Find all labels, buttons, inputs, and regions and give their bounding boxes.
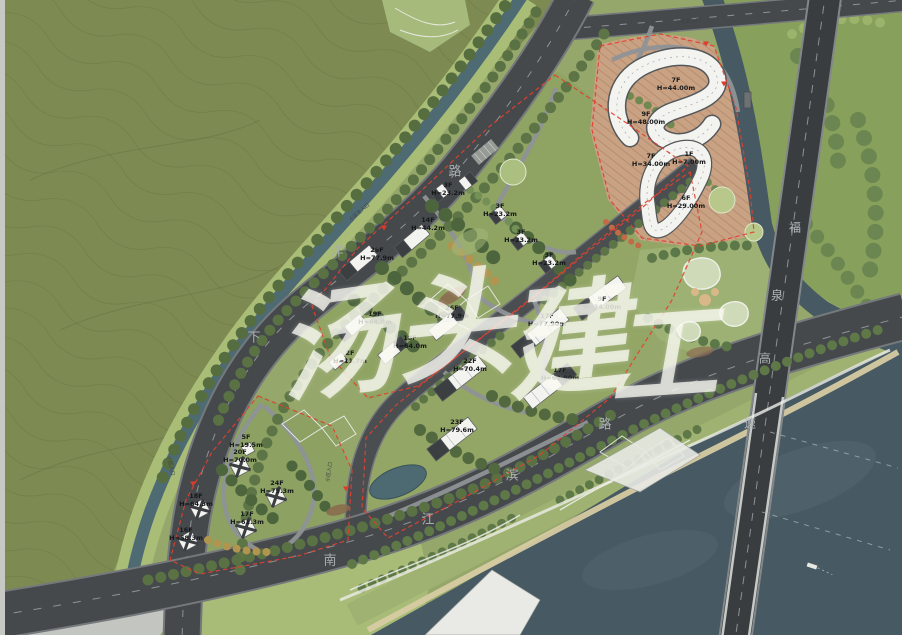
site-plan-canvas: 26FH=77.9m14FH=44.2m3FH=23.2m3FH=23.2m3F… bbox=[0, 0, 902, 635]
site-plan-art bbox=[0, 0, 902, 635]
sheet-edge bbox=[0, 0, 5, 635]
kiosk bbox=[744, 92, 751, 108]
